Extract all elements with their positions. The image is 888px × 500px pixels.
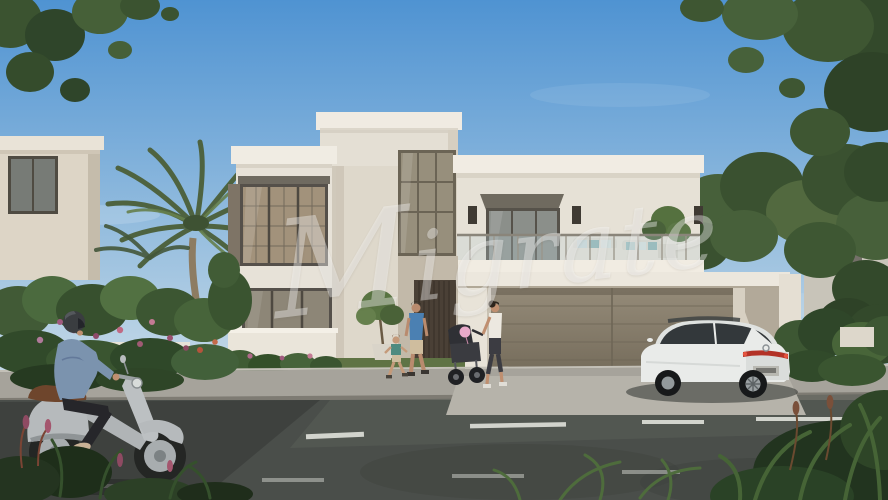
gate-wall: [840, 327, 874, 347]
scooter-headlamp: [132, 378, 142, 388]
screenshot-root: Migrate: [0, 0, 888, 500]
scooter-mirror: [120, 355, 126, 363]
terrace-railing: [457, 235, 700, 260]
entrance-glazing: [398, 150, 456, 256]
pink-balloon: [460, 327, 471, 338]
scene-render: [0, 0, 888, 500]
window-upper-left: [228, 176, 330, 266]
car-shadow: [626, 381, 798, 403]
neighbor-villa-left: [0, 136, 104, 280]
wall-sconce: [468, 206, 477, 224]
wall-sconce: [572, 206, 581, 224]
wall-sconce: [694, 206, 703, 224]
